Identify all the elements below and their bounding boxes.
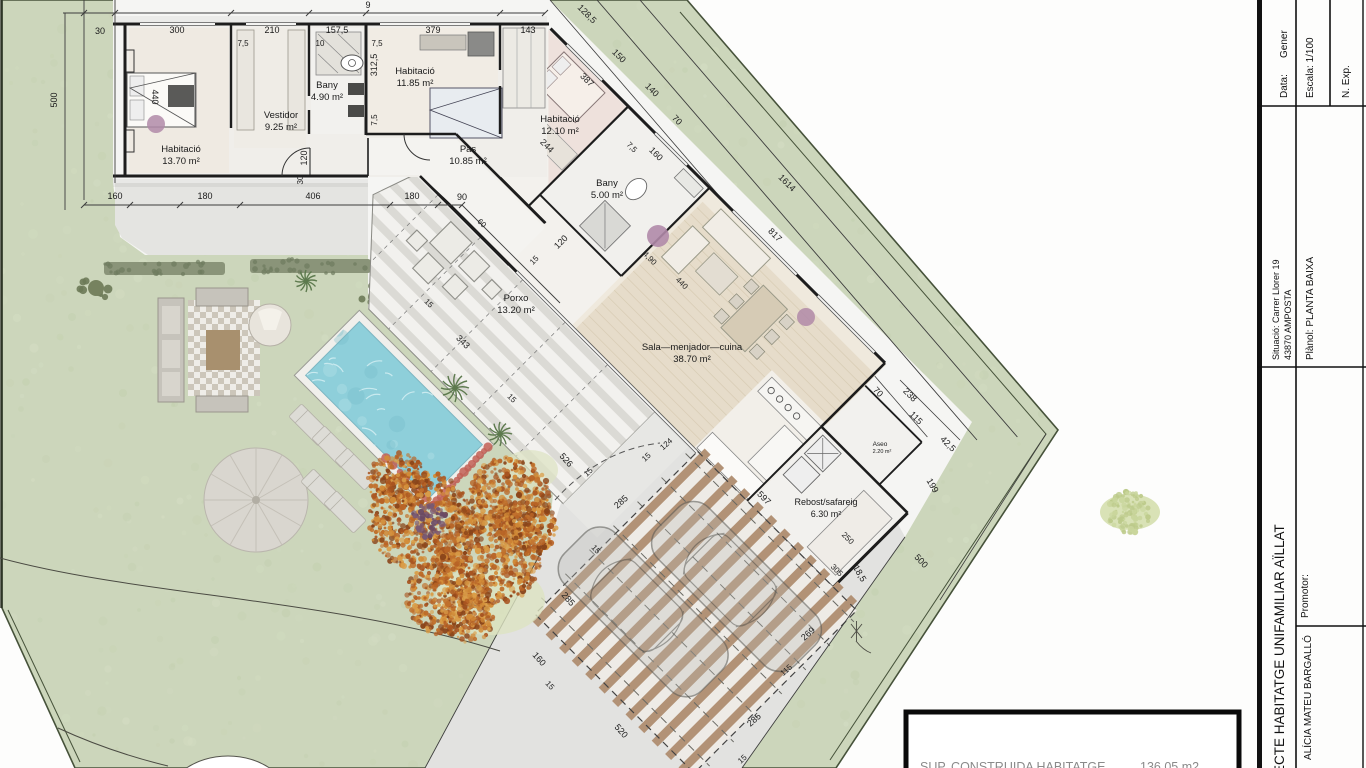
- svg-text:12.10 m²: 12.10 m²: [541, 126, 579, 137]
- svg-text:11.85 m²: 11.85 m²: [397, 78, 434, 89]
- svg-text:Situació: Carrer Llorer 19: Situació: Carrer Llorer 19: [1271, 259, 1281, 360]
- svg-text:N. Exp.: N. Exp.: [1341, 65, 1352, 98]
- svg-text:6.30 m²: 6.30 m²: [811, 509, 842, 519]
- svg-text:PROJECTE HABITATGE UNIFAMILI: PROJECTE HABITATGE UNIFAMILIAR AÏLLAT: [1272, 524, 1287, 768]
- svg-text:Data:: Data:: [1279, 74, 1290, 98]
- svg-text:Porxo: Porxo: [504, 293, 529, 304]
- svg-text:Plànol: PLANTA BAIXA: Plànol: PLANTA BAIXA: [1305, 256, 1316, 360]
- svg-text:157,5: 157,5: [326, 25, 349, 35]
- svg-text:Habitació: Habitació: [161, 144, 201, 155]
- svg-text:120: 120: [299, 150, 309, 165]
- svg-text:5.00 m²: 5.00 m²: [591, 190, 623, 201]
- svg-text:7,5: 7,5: [371, 39, 383, 48]
- svg-text:160: 160: [107, 191, 122, 201]
- svg-text:Escala: 1/100: Escala: 1/100: [1305, 37, 1316, 98]
- svg-text:406: 406: [305, 191, 320, 201]
- svg-text:379: 379: [425, 25, 440, 35]
- svg-text:Gener: Gener: [1279, 30, 1290, 58]
- svg-text:ALÍCIA MATEU BARGALLÓ: ALÍCIA MATEU BARGALLÓ: [1301, 635, 1314, 760]
- svg-text:Bany: Bany: [316, 80, 338, 91]
- svg-text:9.25 m²: 9.25 m²: [265, 122, 297, 133]
- svg-text:Bany: Bany: [596, 178, 618, 189]
- svg-text:38.70 m²: 38.70 m²: [673, 354, 711, 365]
- svg-text:13.20 m²: 13.20 m²: [497, 305, 535, 316]
- svg-text:90: 90: [457, 192, 467, 202]
- svg-text:440: 440: [150, 89, 160, 104]
- svg-text:9: 9: [365, 0, 370, 10]
- svg-text:136,05 m2: 136,05 m2: [1140, 760, 1199, 768]
- svg-text:10.85 m²: 10.85 m²: [449, 156, 487, 167]
- svg-text:300: 300: [169, 25, 184, 35]
- svg-text:Habitació: Habitació: [540, 114, 580, 125]
- svg-text:180: 180: [197, 191, 212, 201]
- svg-text:180: 180: [404, 191, 419, 201]
- svg-text:2.20 m²: 2.20 m²: [873, 449, 892, 455]
- svg-text:30: 30: [296, 175, 305, 184]
- svg-text:Sala—menjador—cuina: Sala—menjador—cuina: [642, 342, 743, 353]
- svg-text:13.70 m²: 13.70 m²: [162, 156, 200, 167]
- svg-text:Promotor:: Promotor:: [1300, 574, 1311, 618]
- svg-text:7,5: 7,5: [237, 39, 249, 48]
- svg-text:Pas: Pas: [460, 144, 477, 155]
- svg-text:43870 AMPOSTA: 43870 AMPOSTA: [1283, 290, 1293, 360]
- svg-text:4.90 m²: 4.90 m²: [311, 92, 343, 103]
- svg-text:Aseo: Aseo: [873, 441, 888, 448]
- svg-text:10: 10: [316, 39, 325, 48]
- svg-text:143: 143: [520, 25, 535, 35]
- svg-text:SUP. CONSTRUIDA HABITATGE: SUP. CONSTRUIDA HABITATGE: [920, 760, 1105, 768]
- svg-text:7,5: 7,5: [370, 114, 379, 126]
- svg-text:312,5: 312,5: [369, 54, 379, 77]
- svg-text:210: 210: [264, 25, 279, 35]
- svg-text:Rebost/safareig: Rebost/safareig: [794, 497, 857, 507]
- svg-text:30: 30: [95, 26, 105, 36]
- svg-text:500: 500: [49, 92, 59, 107]
- svg-text:Habitació: Habitació: [395, 66, 435, 77]
- svg-text:Vestidor: Vestidor: [264, 110, 298, 121]
